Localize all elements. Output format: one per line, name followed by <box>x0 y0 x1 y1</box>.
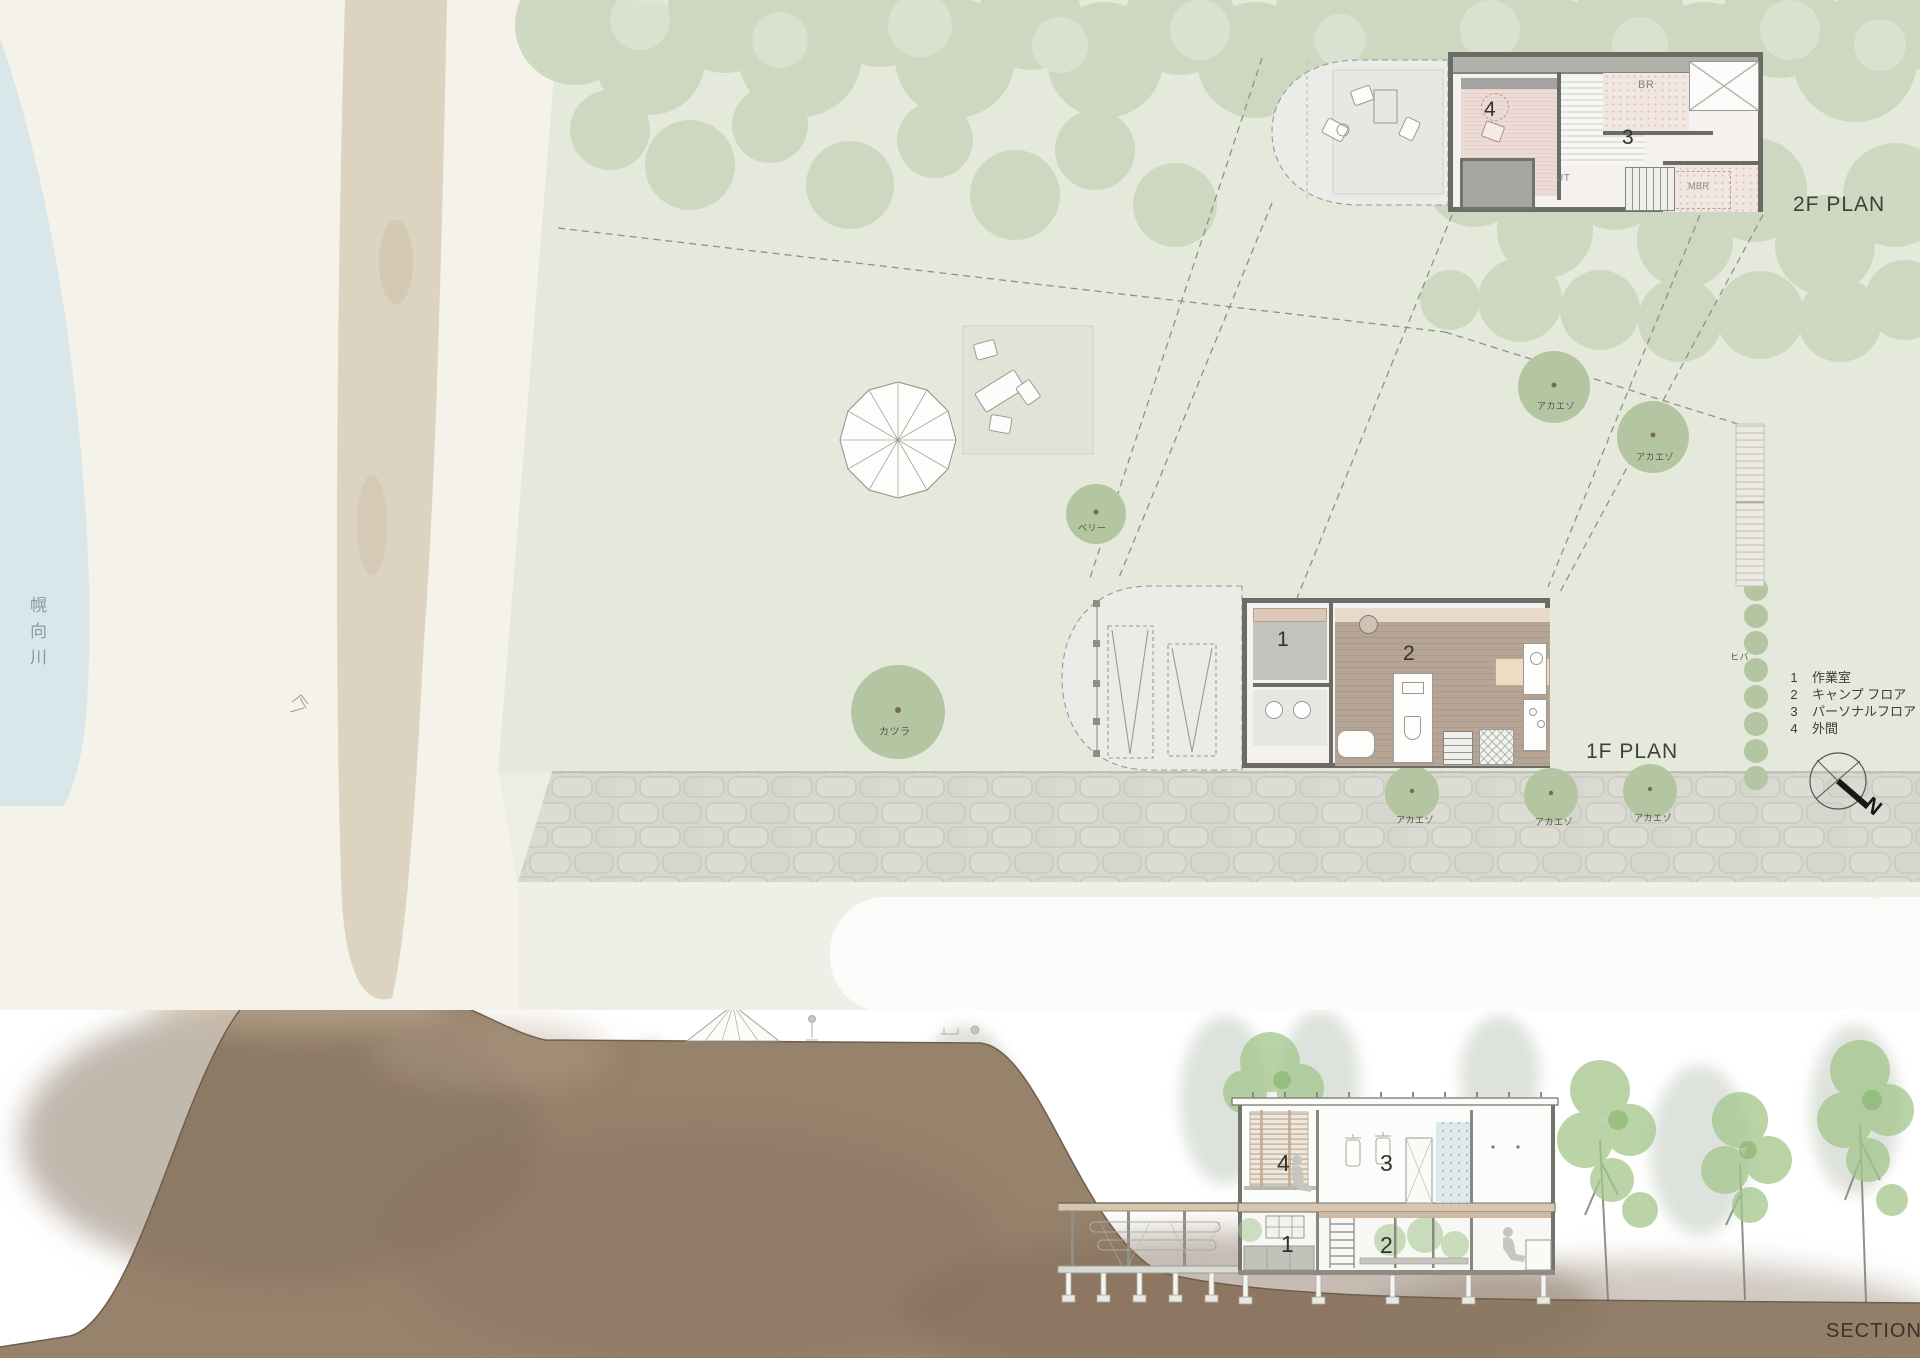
section-room-4: 4 <box>1277 1150 1290 1177</box>
desk <box>1526 1240 1551 1270</box>
burner <box>1537 720 1545 728</box>
tree-label-berry: ベリー <box>1078 521 1107 534</box>
chair-sketch <box>1359 615 1378 634</box>
stairs-1f <box>1443 731 1473 765</box>
wall <box>1253 683 1329 687</box>
section-canvas <box>0 1010 1920 1358</box>
road-shoulder <box>518 882 1920 1012</box>
stairs-2f <box>1625 167 1675 211</box>
river-name: 幌向川 <box>24 596 49 706</box>
stone-road <box>518 772 1920 882</box>
plan-1f-building <box>1242 598 1550 768</box>
wood-walkway <box>1736 424 1764 586</box>
wall <box>1329 603 1333 763</box>
tree-label-akaezo: アカエゾ <box>1636 450 1674 463</box>
deck-1f <box>1062 586 1242 770</box>
shower-wall <box>1436 1122 1470 1203</box>
plan-1f-title: 1F PLAN <box>1586 740 1678 764</box>
exterior-wall <box>1238 1105 1242 1272</box>
mbr-label: MBR <box>1688 181 1710 191</box>
basin <box>1293 701 1311 719</box>
ut-label: UT <box>1556 173 1570 184</box>
tree-label-akaezo: アカエゾ <box>1535 815 1573 828</box>
basin <box>1265 701 1283 719</box>
legend-item: 4外間 <box>1788 721 1916 736</box>
tree-label-akaezo: アカエゾ <box>1537 399 1575 412</box>
legend-label: 外間 <box>1812 721 1838 736</box>
legend-num: 2 <box>1788 687 1800 702</box>
washroom-floor <box>1253 690 1327 746</box>
bathroom <box>1393 673 1433 763</box>
architectural-presentation-board: N 4 3 BR UT MBR 2F PLAN 1 2 1F PLAN ベリー … <box>0 0 1920 1358</box>
toilet <box>1404 716 1421 740</box>
burner <box>1529 708 1537 716</box>
kitchen-sink <box>1523 643 1547 695</box>
entry-tile <box>1479 729 1514 765</box>
workbench <box>1253 608 1327 622</box>
legend-label: 作業室 <box>1812 670 1851 685</box>
wall <box>1603 131 1713 135</box>
roof <box>1232 1098 1558 1105</box>
exterior-wall <box>1551 1105 1555 1272</box>
br-label: BR <box>1638 79 1654 91</box>
bathtub <box>1337 730 1375 758</box>
room-1-floor <box>1253 622 1327 680</box>
patio <box>963 326 1093 454</box>
deck-2f <box>1272 60 1448 205</box>
tree-label-akaezo: アカエゾ <box>1396 813 1434 826</box>
legend-item: 3パーソナルフロア <box>1788 704 1916 719</box>
beam <box>1319 1212 1551 1218</box>
tree-label-hiba: ヒバ <box>1730 650 1749 663</box>
window-bench <box>1360 1258 1468 1264</box>
floor-slab-2f <box>1238 1203 1555 1212</box>
room-3-number: 3 <box>1622 126 1634 150</box>
bath-sink <box>1402 682 1424 694</box>
plan-2f-building <box>1448 52 1763 212</box>
plan-2f-title: 2F PLAN <box>1793 193 1885 217</box>
room-1-number: 1 <box>1277 628 1289 652</box>
kitchen-stove <box>1523 699 1547 751</box>
closet-2f <box>1689 61 1759 111</box>
section-room-1: 1 <box>1281 1231 1294 1258</box>
room-4-number: 4 <box>1484 98 1496 122</box>
legend-item: 1作業室 <box>1788 670 1916 685</box>
room-legend: 1作業室 2キャンプ フロア 3パーソナルフロア 4外間 <box>1788 670 1916 736</box>
section-room-2: 2 <box>1380 1232 1393 1259</box>
sink-bowl <box>1530 652 1543 665</box>
storage-box-2f <box>1460 158 1535 210</box>
section-title: SECTION <box>1826 1320 1920 1343</box>
room-4-wall <box>1461 78 1557 89</box>
legend-num: 4 <box>1788 721 1800 736</box>
legend-num: 1 <box>1788 670 1800 685</box>
room-2-number: 2 <box>1403 642 1415 666</box>
section-room-3: 3 <box>1380 1150 1393 1177</box>
floor-slab-1f <box>1238 1270 1555 1275</box>
legend-num: 3 <box>1788 704 1800 719</box>
tree-label-katsura: カツラ <box>879 723 911 738</box>
legend-label: パーソナルフロア <box>1812 704 1916 719</box>
legend-label: キャンプ フロア <box>1812 687 1906 702</box>
cabinets <box>1244 1246 1314 1270</box>
legend-item: 2キャンプ フロア <box>1788 687 1916 702</box>
tree-label-akaezo: アカエゾ <box>1634 811 1672 824</box>
wall <box>1663 161 1758 165</box>
